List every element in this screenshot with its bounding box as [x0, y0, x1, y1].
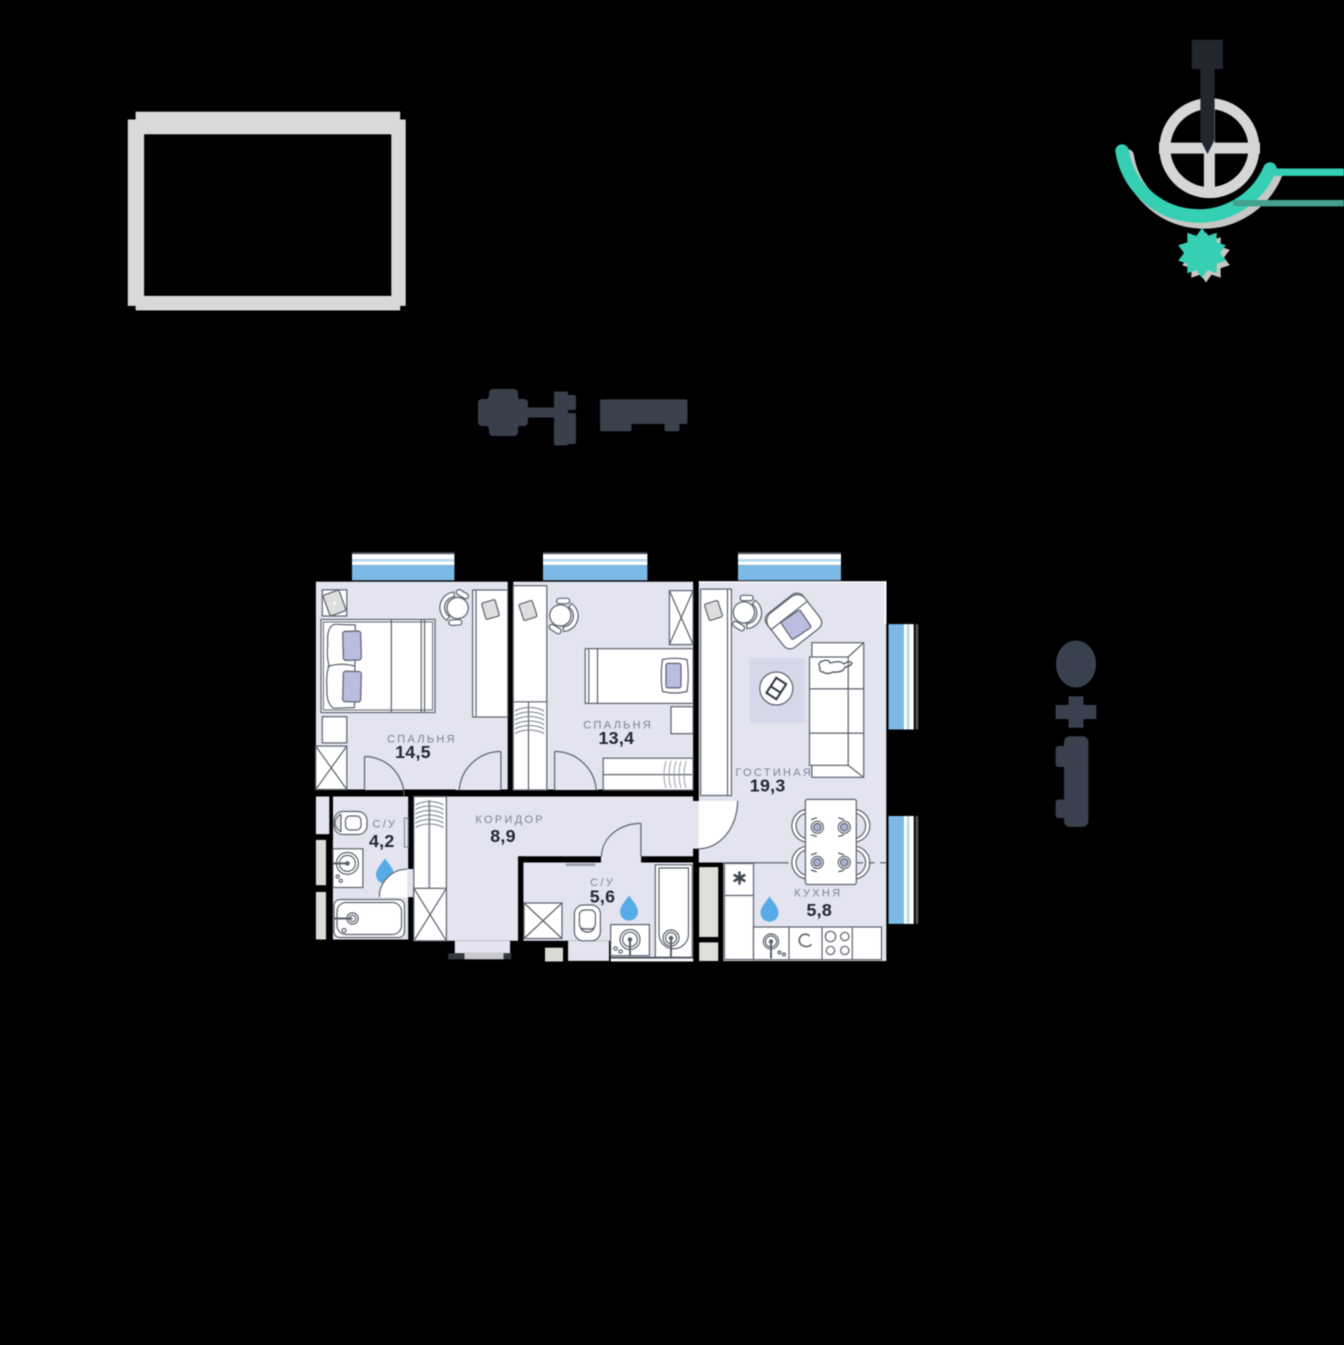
svg-text:5,6: 5,6: [590, 887, 616, 907]
svg-text:19,3: 19,3: [750, 776, 786, 796]
svg-text:КОРИДОР: КОРИДОР: [475, 814, 545, 826]
svg-text:13,4: 13,4: [598, 728, 634, 748]
svg-text:С/У: С/У: [372, 818, 397, 830]
svg-text:КУХНЯ: КУХНЯ: [794, 888, 842, 900]
svg-text:4,2: 4,2: [369, 831, 395, 851]
svg-text:5,8: 5,8: [806, 900, 832, 920]
svg-text:14,5: 14,5: [395, 742, 431, 762]
svg-text:8,9: 8,9: [490, 826, 516, 846]
